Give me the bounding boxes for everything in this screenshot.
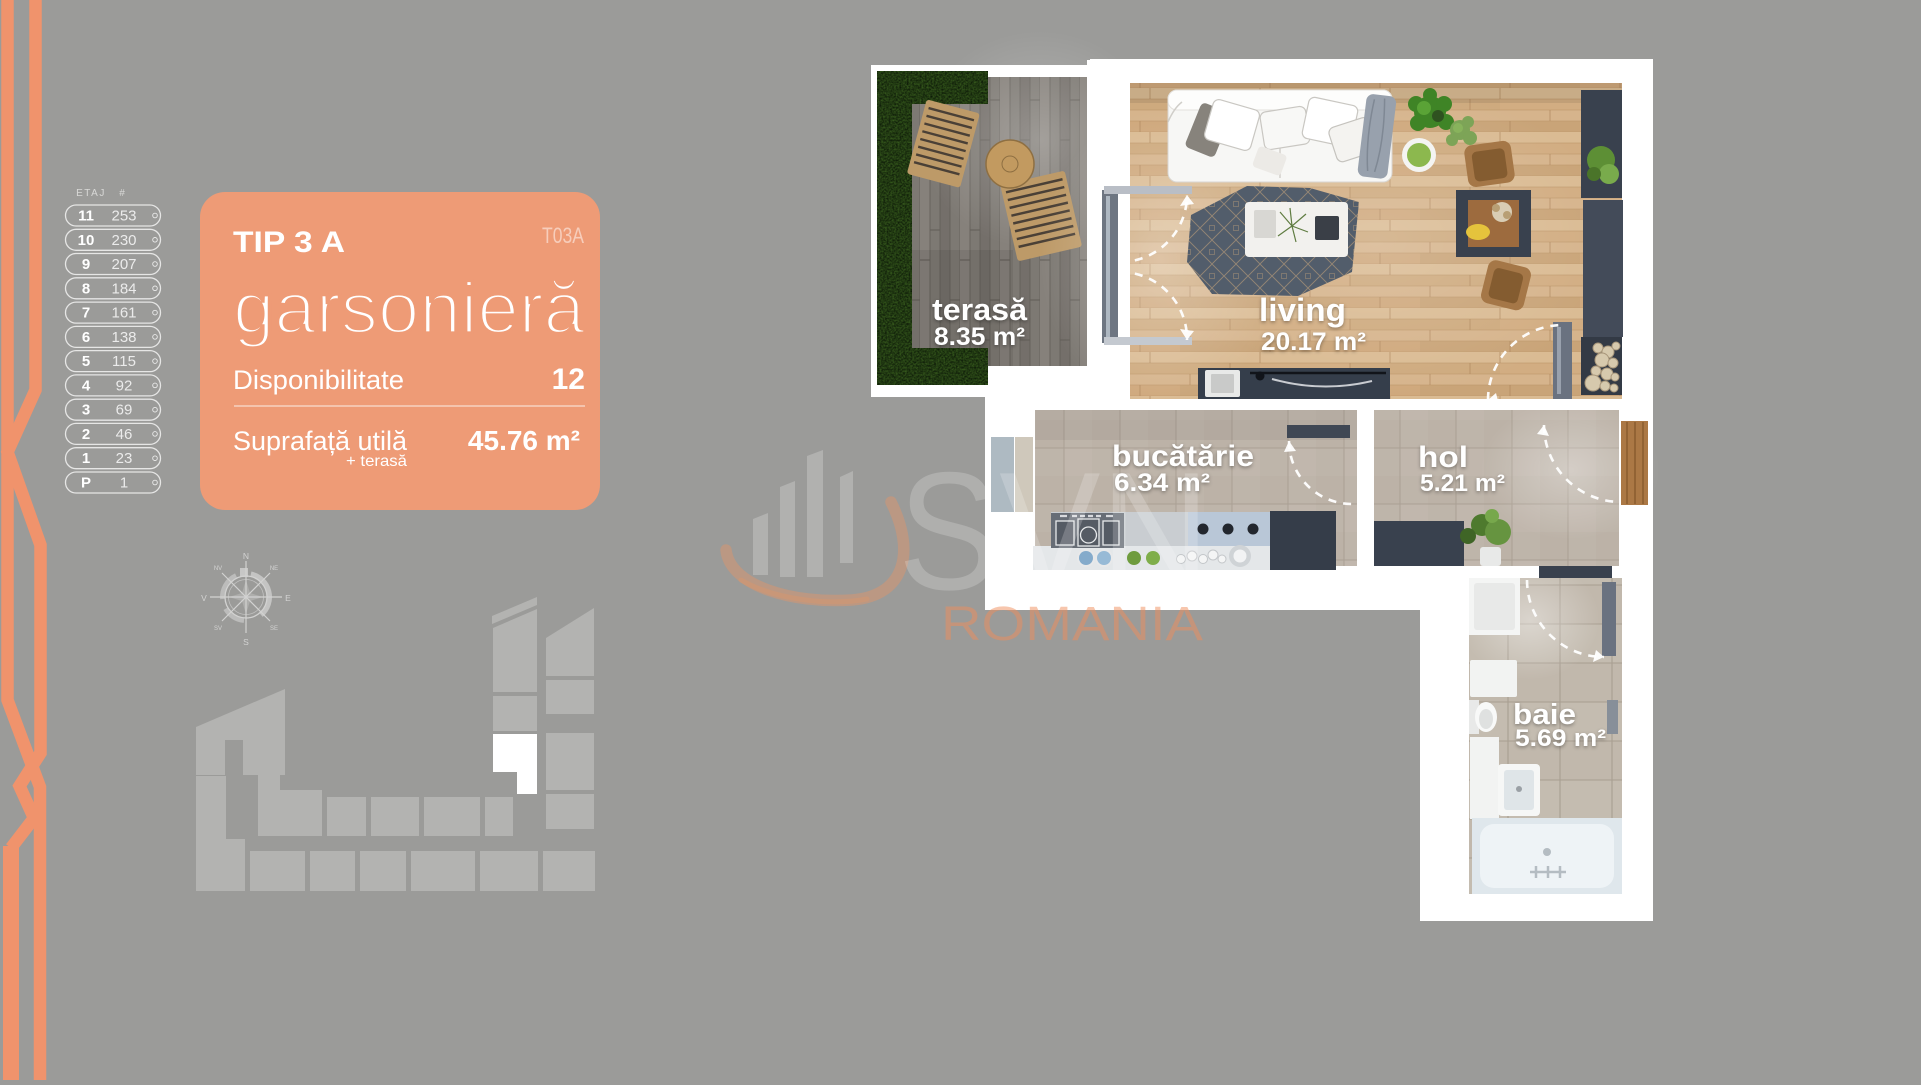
svg-text:NV: NV — [214, 566, 222, 572]
svg-text:Suprafață utilă: Suprafață utilă — [233, 426, 408, 456]
svg-text:E: E — [285, 593, 291, 603]
svg-text:ETAJ: ETAJ — [76, 188, 106, 199]
svg-text:7: 7 — [82, 305, 90, 322]
svg-text:S: S — [243, 637, 249, 647]
svg-text:TIP 3 A: TIP 3 A — [233, 226, 345, 259]
svg-text:3: 3 — [82, 402, 90, 419]
svg-text:terasă: terasă — [932, 292, 1028, 327]
svg-text:12: 12 — [552, 363, 585, 396]
svg-text:115: 115 — [112, 353, 136, 370]
svg-text:6: 6 — [82, 329, 90, 346]
svg-text:20.17 m²: 20.17 m² — [1261, 328, 1366, 356]
svg-text:8: 8 — [82, 280, 90, 297]
svg-text:1: 1 — [120, 475, 128, 492]
svg-text:69: 69 — [116, 402, 133, 419]
svg-text:SE: SE — [270, 626, 278, 632]
svg-text:46: 46 — [116, 426, 133, 443]
svg-text:SVN: SVN — [898, 437, 1210, 625]
svg-text:ROMANIA: ROMANIA — [941, 598, 1203, 651]
svg-text:45.76 m²: 45.76 m² — [468, 425, 580, 456]
svg-text:Disponibilitate: Disponibilitate — [233, 365, 404, 395]
svg-text:P: P — [81, 475, 91, 492]
svg-text:253: 253 — [111, 208, 136, 225]
svg-text:SV: SV — [214, 626, 222, 632]
svg-text:#: # — [119, 188, 125, 199]
svg-text:23: 23 — [116, 450, 133, 467]
svg-text:5: 5 — [82, 353, 90, 370]
svg-text:11: 11 — [78, 208, 94, 225]
svg-text:161: 161 — [111, 305, 136, 322]
svg-text:230: 230 — [111, 232, 136, 249]
svg-text:5.21 m²: 5.21 m² — [1420, 470, 1505, 497]
svg-text:T03A: T03A — [542, 223, 584, 248]
svg-text:8.35 m²: 8.35 m² — [934, 323, 1025, 351]
svg-text:+ terasă: + terasă — [346, 453, 407, 470]
svg-text:138: 138 — [111, 329, 136, 346]
svg-text:9: 9 — [82, 256, 90, 273]
svg-text:10: 10 — [78, 232, 95, 249]
svg-text:N: N — [243, 551, 249, 561]
svg-text:2: 2 — [82, 426, 90, 443]
svg-text:4: 4 — [82, 377, 91, 394]
svg-text:184: 184 — [111, 280, 136, 297]
svg-text:1: 1 — [82, 450, 90, 467]
svg-text:207: 207 — [111, 256, 136, 273]
svg-text:NE: NE — [270, 566, 278, 572]
svg-text:92: 92 — [116, 377, 133, 394]
svg-text:living: living — [1259, 292, 1346, 328]
svg-text:5.69 m²: 5.69 m² — [1515, 725, 1606, 752]
svg-text:V: V — [201, 593, 207, 603]
svg-text:garsonieră: garsonieră — [233, 269, 586, 349]
